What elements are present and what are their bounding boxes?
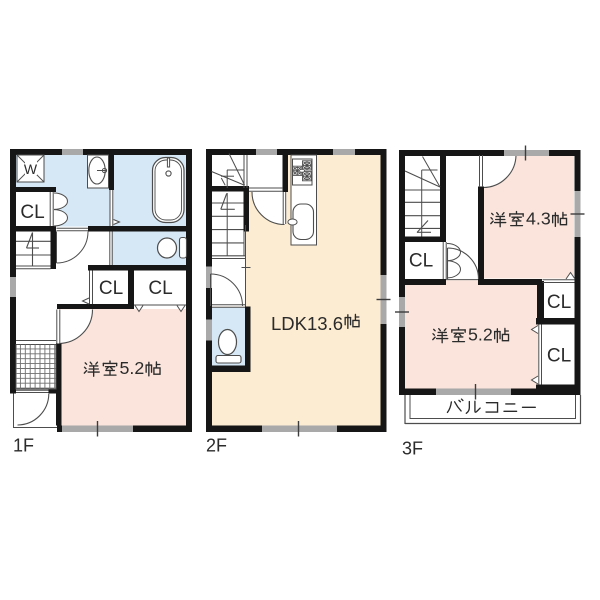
svg-text:CL: CL [20, 202, 44, 223]
svg-text:CL: CL [409, 251, 433, 272]
svg-text:3F: 3F [402, 439, 423, 459]
svg-text:CL: CL [547, 292, 571, 313]
svg-text:1F: 1F [13, 436, 34, 456]
svg-text:W: W [24, 161, 38, 177]
svg-text:4.3: 4.3 [526, 208, 551, 228]
svg-text:5.2: 5.2 [120, 358, 145, 378]
svg-text:LDK13.6: LDK13.6 [271, 313, 343, 334]
svg-text:CL: CL [99, 278, 123, 299]
svg-text:CL: CL [547, 346, 571, 367]
svg-text:2F: 2F [206, 436, 227, 456]
svg-text:CL: CL [148, 278, 172, 299]
svg-text:5.2: 5.2 [468, 324, 493, 344]
